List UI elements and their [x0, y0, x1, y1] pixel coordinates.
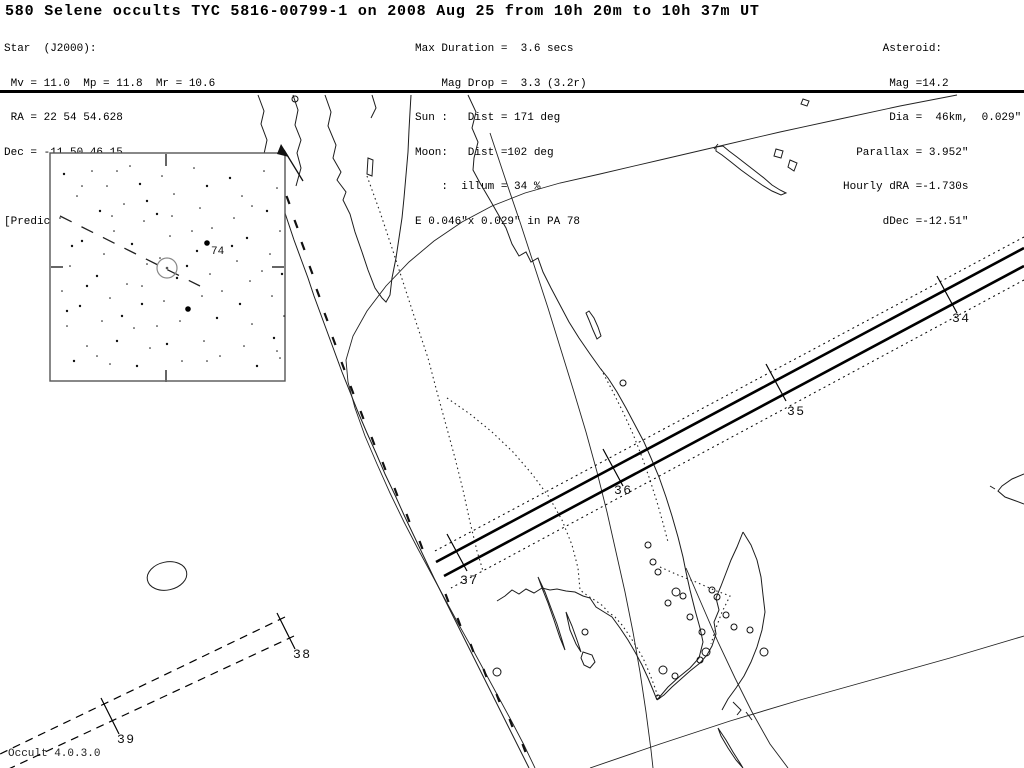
field-star — [86, 345, 88, 347]
field-star — [73, 360, 75, 362]
grid-meridian — [686, 568, 788, 768]
field-star — [156, 325, 158, 327]
coastline-right-edge — [990, 474, 1024, 504]
time-label: 38 — [293, 647, 312, 662]
time-tick — [277, 613, 295, 649]
time-tick — [603, 449, 623, 486]
field-star — [209, 273, 211, 275]
field-star — [241, 195, 243, 197]
field-star — [236, 260, 238, 262]
field-star — [81, 240, 83, 242]
city-marker — [672, 673, 678, 679]
city-markers — [292, 96, 768, 699]
field-star — [159, 257, 161, 259]
field-star — [216, 317, 218, 319]
field-star — [116, 340, 118, 342]
city-marker — [650, 559, 656, 565]
field-star — [96, 275, 98, 277]
field-star — [149, 347, 151, 349]
field-star — [141, 303, 143, 305]
field-star — [179, 320, 181, 322]
city-marker — [582, 629, 588, 635]
border-line — [367, 176, 483, 571]
field-star — [269, 253, 271, 255]
field-star — [281, 273, 283, 275]
city-marker — [747, 627, 753, 633]
field-star — [169, 235, 171, 237]
time-tick — [101, 698, 119, 734]
field-star — [96, 355, 98, 357]
field-star — [59, 217, 61, 219]
coastline-strip — [371, 95, 376, 118]
field-star — [231, 245, 233, 247]
field-star — [266, 210, 268, 212]
grid-meridian — [490, 133, 653, 768]
field-star — [131, 243, 133, 245]
sliver-island — [367, 158, 373, 176]
border-line — [447, 398, 658, 697]
coastline-bay-shore — [497, 588, 657, 700]
field-star — [113, 230, 115, 232]
field-star — [283, 315, 285, 317]
field-star — [99, 210, 101, 212]
field-star — [279, 357, 281, 359]
time-label: 37 — [460, 573, 479, 588]
path-edges — [436, 248, 1024, 576]
software-credit: Occult 4.0.3.0 — [8, 748, 100, 760]
field-star — [111, 215, 113, 217]
field-star — [196, 250, 198, 252]
field-star — [79, 305, 81, 307]
time-tick — [447, 534, 467, 571]
grid-parallel — [590, 636, 1024, 768]
bay-island — [566, 612, 581, 652]
coastline-west — [258, 95, 529, 768]
bright-star-label: 74 — [211, 246, 225, 258]
field-star — [181, 360, 183, 362]
field-star — [243, 345, 245, 347]
small-island — [788, 160, 797, 171]
separator-rule — [0, 90, 1024, 93]
field-star — [81, 185, 83, 187]
bright-star — [185, 306, 191, 312]
coastline-gulf — [325, 95, 411, 302]
field-star — [66, 325, 68, 327]
target-star-dot — [166, 267, 169, 270]
path-map: Occult 4.0.3.0 — [0, 0, 1024, 768]
city-marker — [665, 600, 671, 606]
field-star — [123, 203, 125, 205]
time-label: 39 — [117, 732, 136, 747]
field-star — [69, 265, 71, 267]
city-marker — [672, 588, 680, 596]
field-star — [256, 365, 258, 367]
field-star — [86, 285, 88, 287]
city-marker — [709, 587, 715, 593]
city-marker — [760, 648, 768, 656]
field-star — [126, 283, 128, 285]
field-star — [166, 343, 168, 345]
field-star — [273, 337, 275, 339]
field-star — [261, 270, 263, 272]
field-star — [239, 303, 241, 305]
field-star — [133, 327, 135, 329]
path-edge-north — [436, 248, 1024, 562]
field-star — [211, 227, 213, 229]
field-star — [146, 263, 148, 265]
field-star — [146, 200, 148, 202]
field-star — [199, 207, 201, 209]
field-star — [219, 355, 221, 357]
field-star — [156, 213, 158, 215]
coastline-east-tip — [722, 532, 765, 710]
field-star — [106, 185, 108, 187]
field-star — [229, 177, 231, 179]
border-line — [660, 567, 730, 644]
city-marker — [659, 666, 667, 674]
borders — [367, 176, 730, 697]
city-marker — [655, 569, 661, 575]
field-star — [136, 365, 138, 367]
field-star — [63, 173, 65, 175]
field-star — [201, 295, 203, 297]
path-daylight-edges — [0, 617, 294, 768]
field-star — [173, 193, 175, 195]
field-star — [263, 170, 265, 172]
star-chart-inset: 74 — [50, 144, 303, 382]
coastline-landmass — [468, 95, 743, 700]
path-edge-south — [444, 266, 1024, 576]
terminator-hatches — [287, 196, 526, 752]
field-star — [251, 205, 253, 207]
city-marker — [680, 593, 686, 599]
field-star — [206, 360, 208, 362]
field-star — [71, 245, 73, 247]
lagoon-sliver — [586, 311, 601, 339]
city-marker — [493, 668, 501, 676]
city-marker — [620, 380, 626, 386]
field-star — [116, 170, 118, 172]
field-star — [66, 310, 68, 312]
lake-ellipse — [145, 558, 190, 594]
sigma-limit-south — [451, 280, 1024, 588]
time-label: 34 — [952, 311, 971, 326]
field-star — [221, 290, 223, 292]
city-marker — [645, 542, 651, 548]
field-star — [276, 187, 278, 189]
field-star — [271, 295, 273, 297]
coastal-sliver — [718, 728, 743, 768]
field-star — [176, 277, 178, 279]
field-star — [121, 315, 123, 317]
field-star — [206, 185, 208, 187]
city-marker — [731, 624, 737, 630]
field-star — [143, 220, 145, 222]
field-star — [276, 350, 278, 352]
field-star — [61, 290, 63, 292]
city-marker — [723, 612, 729, 618]
field-star — [191, 230, 193, 232]
field-star — [279, 230, 281, 232]
field-star — [193, 167, 195, 169]
field-star — [161, 175, 163, 177]
sigma-limit-north — [433, 237, 1024, 552]
field-star — [251, 323, 253, 325]
field-star — [186, 265, 188, 267]
small-island — [801, 99, 809, 106]
field-star — [101, 320, 103, 322]
field-star — [171, 215, 173, 217]
occult-map-window: 580 Selene occults TYC 5816-00799-1 on 2… — [0, 0, 1024, 768]
bright-star-74 — [204, 240, 210, 246]
field-star — [249, 280, 251, 282]
field-star — [163, 300, 165, 302]
time-label: 35 — [787, 404, 806, 419]
bay-island — [538, 577, 565, 650]
bay-island — [581, 652, 595, 668]
field-star — [139, 183, 141, 185]
city-marker — [699, 629, 705, 635]
field-star — [76, 195, 78, 197]
field-star — [109, 297, 111, 299]
field-star — [233, 217, 235, 219]
limb-curve — [346, 95, 957, 768]
field-star — [103, 253, 105, 255]
field-star — [129, 165, 131, 167]
small-island — [774, 149, 783, 158]
field-star — [203, 340, 205, 342]
field-star — [246, 237, 248, 239]
field-star — [91, 170, 93, 172]
field-star — [141, 285, 143, 287]
field-star — [109, 363, 111, 365]
time-label: 36 — [614, 483, 633, 498]
city-marker — [687, 614, 693, 620]
daylight-edge-north — [0, 617, 285, 754]
